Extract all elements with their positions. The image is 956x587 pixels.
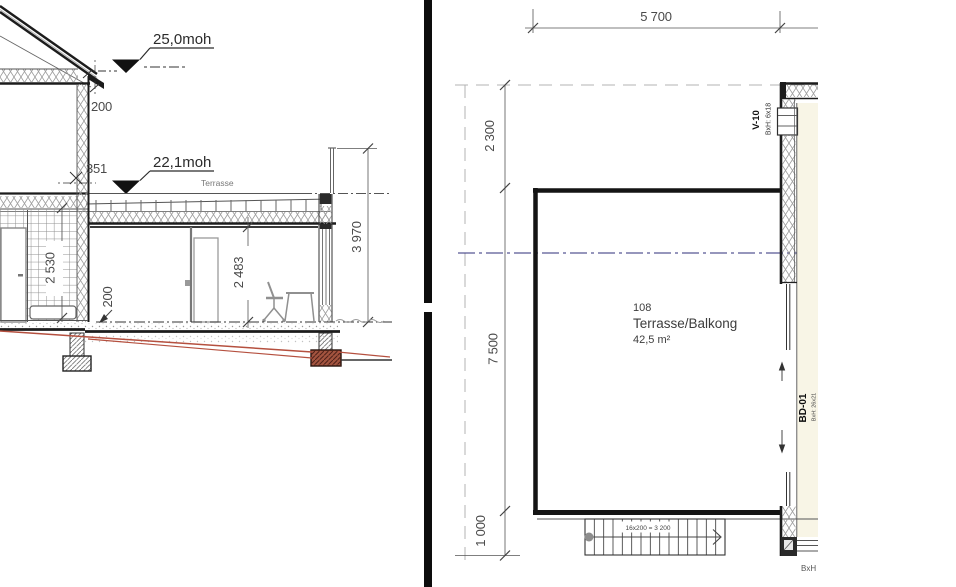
room-label: 108 Terrasse/Balkong 42,5 m² <box>633 302 737 346</box>
drawing-canvas: 200 25,0moh 22,1moh 351 Terrasse <box>0 0 956 587</box>
dim-width-top: 5 700 <box>640 9 672 24</box>
room-number: 108 <box>633 302 651 314</box>
section-view: 200 25,0moh 22,1moh 351 Terrasse <box>0 0 425 587</box>
dim-floor-thickness: 200 <box>100 286 115 307</box>
window-tag: V-10 <box>751 110 762 130</box>
dim-total-height-group: 3 970 <box>337 144 377 328</box>
ceiling-structure <box>0 69 90 84</box>
footing-left <box>63 356 91 371</box>
stairs: 16x200 = 3 200 <box>585 519 726 555</box>
top-dimension: 5 700 <box>525 9 818 33</box>
room-name: Terrasse/Balkong <box>633 316 737 331</box>
terrace-railing <box>328 148 336 193</box>
dim-room-height: 2 483 <box>231 257 246 289</box>
foundation-column-right <box>319 333 332 352</box>
interior-door <box>194 238 218 322</box>
elevation-lower-label: 22,1moh <box>153 154 211 171</box>
dim-bath-height: 2 530 <box>43 252 58 284</box>
stair-start-marker <box>585 533 594 542</box>
dim-left-upper: 2 300 <box>482 120 497 152</box>
door-direction-arrows <box>780 363 785 452</box>
elevation-marker-lower: 22,1moh <box>112 154 214 194</box>
dim-left-lower: 1 000 <box>473 515 488 547</box>
dim-left-main: 7 500 <box>486 333 501 365</box>
elevation-upper-label: 25,0moh <box>153 31 211 48</box>
room-area: 42,5 m² <box>633 334 671 346</box>
dim-roof-edge: 200 <box>91 99 112 114</box>
floor-and-foundation <box>0 320 392 372</box>
elevation-triangle-icon <box>112 181 140 195</box>
glazed-wall <box>319 194 332 322</box>
door-size: BxH: 26x21 <box>812 393 818 421</box>
plan-view: 2 300 7 500 1 000 5 700 108 Terrasse/Bal… <box>425 0 956 587</box>
sliding-door-bd01 <box>787 284 790 506</box>
window-size: BxH: 6x18 <box>766 103 773 135</box>
stair-note: 16x200 = 3 200 <box>626 525 671 532</box>
dim-parapet: 351 <box>86 161 107 176</box>
dim-total-height: 3 970 <box>349 221 364 253</box>
main-room: 2 483 200 <box>90 217 318 328</box>
terrace-label: Terrasse <box>201 178 234 188</box>
bathroom: 2 530 <box>0 203 77 323</box>
door-handle-icon <box>18 274 23 277</box>
bathtub <box>30 306 76 319</box>
terrace-outline <box>533 188 781 513</box>
edge-note: BxH <box>801 564 816 573</box>
elevation-marker-upper: 25,0moh <box>112 31 214 73</box>
interior-floor <box>797 103 818 537</box>
door-tag: BD-01 <box>798 393 809 422</box>
mid-wall <box>77 192 89 322</box>
desk-and-chair <box>263 282 314 322</box>
